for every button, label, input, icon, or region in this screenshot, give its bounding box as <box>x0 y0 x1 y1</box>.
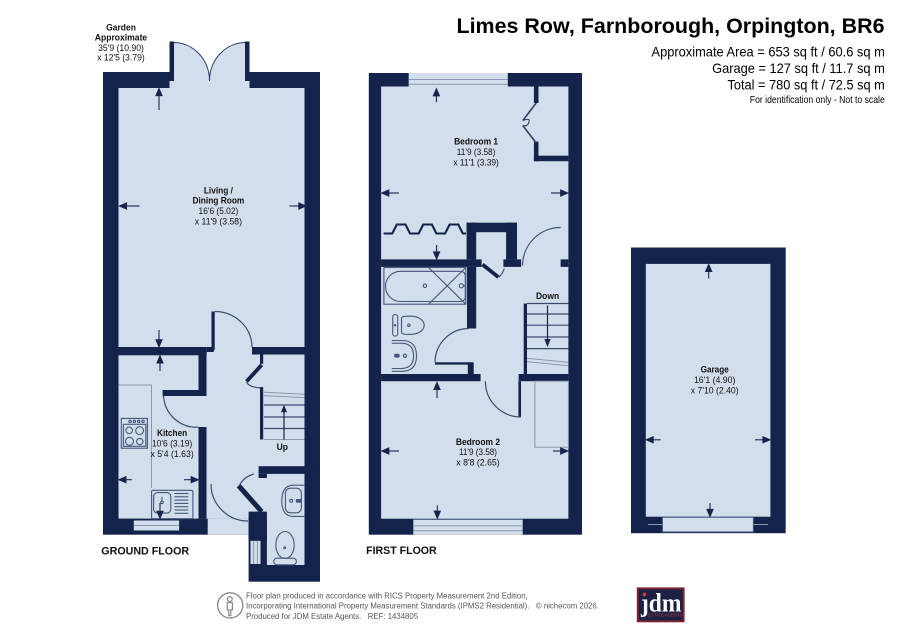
svg-text:Approximate: Approximate <box>95 33 147 43</box>
svg-text:Total = 780 sq ft / 72.5 sq m: Total = 780 sq ft / 72.5 sq m <box>728 76 885 92</box>
svg-text:Living /: Living / <box>204 185 234 195</box>
svg-text:Incorporating International Pr: Incorporating International Property Mea… <box>246 602 599 611</box>
svg-text:Produced for JDM Estate Agents: Produced for JDM Estate Agents. REF: 143… <box>246 612 419 621</box>
svg-text:Dining Room: Dining Room <box>192 195 244 205</box>
svg-text:x 5'4 (1.63): x 5'4 (1.63) <box>150 449 193 459</box>
svg-text:GROUND FLOOR: GROUND FLOOR <box>101 546 189 558</box>
svg-text:FIRST FLOOR: FIRST FLOOR <box>366 545 437 557</box>
svg-text:Down: Down <box>536 291 559 301</box>
svg-text:11'9 (3.58): 11'9 (3.58) <box>459 447 497 457</box>
svg-text:x 12'5 (3.79): x 12'5 (3.79) <box>97 52 145 62</box>
svg-text:x 11'9 (3.58): x 11'9 (3.58) <box>195 216 242 226</box>
svg-text:x 8'8 (2.65): x 8'8 (2.65) <box>456 458 499 468</box>
svg-text:11'9 (3.58): 11'9 (3.58) <box>457 147 496 157</box>
svg-text:Garden: Garden <box>106 23 136 33</box>
svg-text:ESTATE AGENTS: ESTATE AGENTS <box>648 612 682 618</box>
svg-text:x 7'10 (2.40): x 7'10 (2.40) <box>691 386 739 396</box>
svg-text:For identification only - Not: For identification only - Not to scale <box>750 95 885 106</box>
svg-text:16'6 (5.02): 16'6 (5.02) <box>199 206 239 216</box>
svg-text:x 11'1 (3.39): x 11'1 (3.39) <box>453 157 498 167</box>
svg-text:Kitchen: Kitchen <box>157 428 187 438</box>
svg-text:Bedroom 2: Bedroom 2 <box>456 437 500 447</box>
svg-text:16'1 (4.90): 16'1 (4.90) <box>694 375 736 385</box>
svg-text:10'6 (3.19): 10'6 (3.19) <box>152 438 192 448</box>
svg-text:Floor plan produced in accorda: Floor plan produced in accordance with R… <box>246 592 528 601</box>
svg-text:Up: Up <box>277 442 289 452</box>
svg-text:Limes Row, Farnborough, Orping: Limes Row, Farnborough, Orpington, BR6 <box>457 14 885 38</box>
svg-text:Garage = 127 sq ft / 11.7 sq m: Garage = 127 sq ft / 11.7 sq m <box>712 60 885 76</box>
svg-text:Bedroom 1: Bedroom 1 <box>454 137 498 147</box>
svg-text:Approximate Area = 653 sq ft /: Approximate Area = 653 sq ft / 60.6 sq m <box>652 44 885 60</box>
svg-text:Garage: Garage <box>701 365 729 375</box>
